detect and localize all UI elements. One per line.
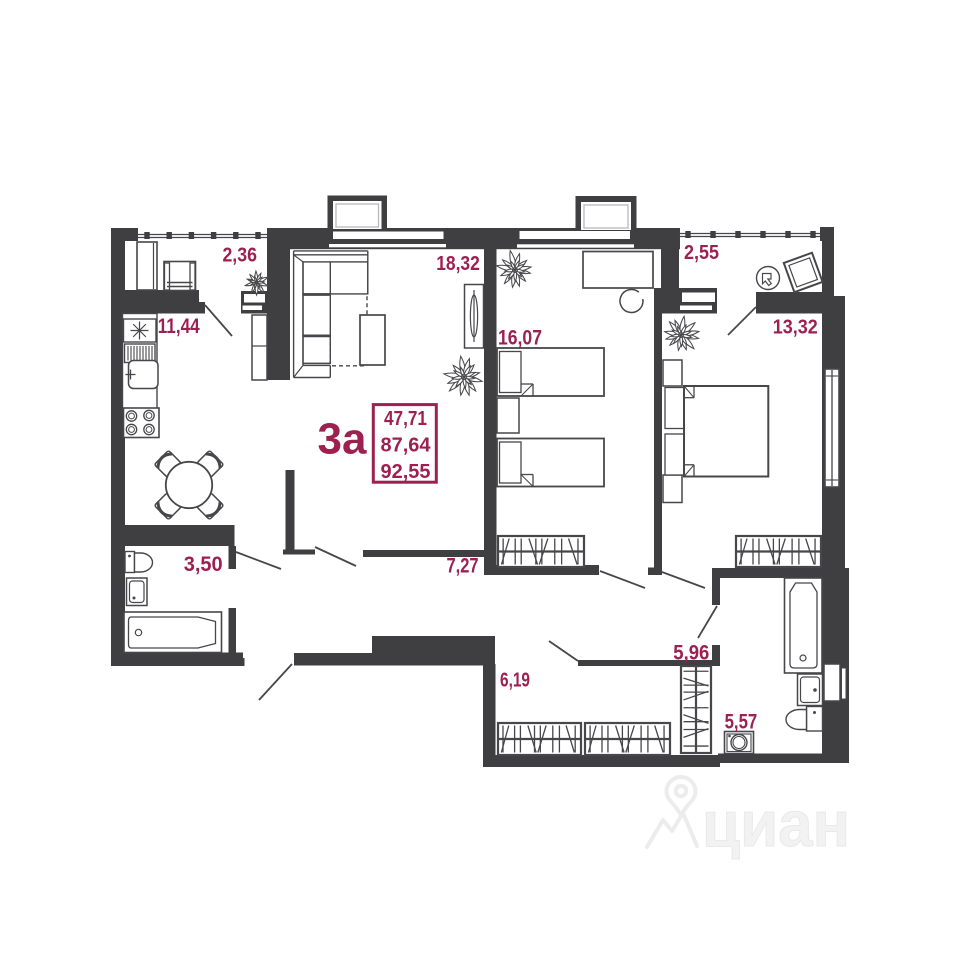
svg-text:5,57: 5,57 <box>725 711 758 734</box>
svg-text:2,36: 2,36 <box>222 245 257 267</box>
svg-text:47,71: 47,71 <box>384 407 427 430</box>
svg-text:6,19: 6,19 <box>500 669 530 692</box>
svg-text:3а: 3а <box>318 415 367 464</box>
svg-text:18,32: 18,32 <box>436 253 480 275</box>
svg-text:2,55: 2,55 <box>684 242 719 264</box>
svg-text:11,44: 11,44 <box>158 315 200 338</box>
svg-text:13,32: 13,32 <box>773 316 818 339</box>
svg-text:87,64: 87,64 <box>381 434 432 457</box>
svg-text:3,50: 3,50 <box>184 553 223 576</box>
svg-text:циан: циан <box>702 788 850 860</box>
svg-text:16,07: 16,07 <box>498 327 542 350</box>
svg-text:92,55: 92,55 <box>381 460 431 483</box>
svg-text:5,96: 5,96 <box>673 642 709 665</box>
svg-text:7,27: 7,27 <box>447 555 479 578</box>
